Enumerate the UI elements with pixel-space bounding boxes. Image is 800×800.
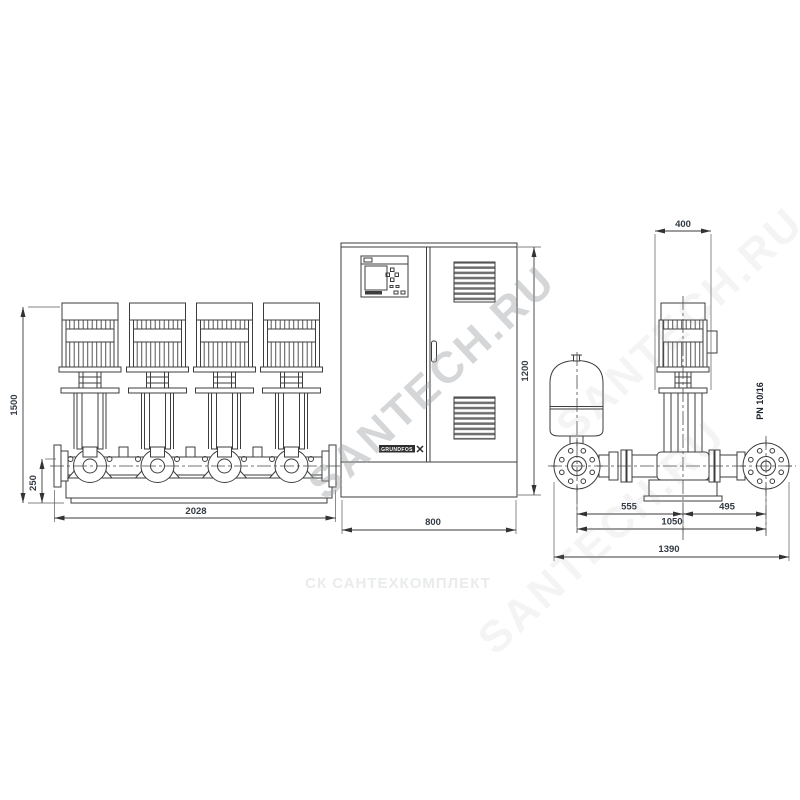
pump-booster-set-drawing: 1500 250 2028: [0, 0, 800, 800]
manifold-stub: [119, 447, 128, 457]
dim-total-depth-label: 1390: [658, 544, 679, 555]
dim-flange-span-label: 1050: [661, 517, 682, 528]
dim-total-length-label: 2028: [185, 506, 206, 517]
dim-base-height-label: 250: [28, 475, 39, 491]
pressure-rating-label: PN 10/16: [755, 382, 765, 420]
dim-motor-width-label: 400: [675, 219, 691, 230]
dim-total-height-label: 1500: [9, 394, 20, 415]
manifold-stub: [253, 447, 262, 457]
controller-label-bar: [365, 291, 382, 295]
controller-display: [365, 266, 387, 290]
dim-cabinet-width-label: 800: [425, 517, 441, 528]
dim-cabinet-height-label: 1200: [520, 360, 531, 381]
tank-air-valve: [574, 355, 580, 361]
footer-watermark: СК САНТЕХКОМПЛЕКТ: [305, 575, 491, 592]
base-frame-foot: [71, 498, 327, 503]
manifold-stub: [186, 447, 195, 457]
vent-louver-bottom: [454, 397, 495, 439]
terminal-box: [707, 331, 717, 353]
dim-discharge-offset-label: 495: [719, 502, 736, 513]
technical-drawing-page: 1500 250 2028: [0, 0, 800, 800]
controller-panel: [361, 256, 408, 297]
